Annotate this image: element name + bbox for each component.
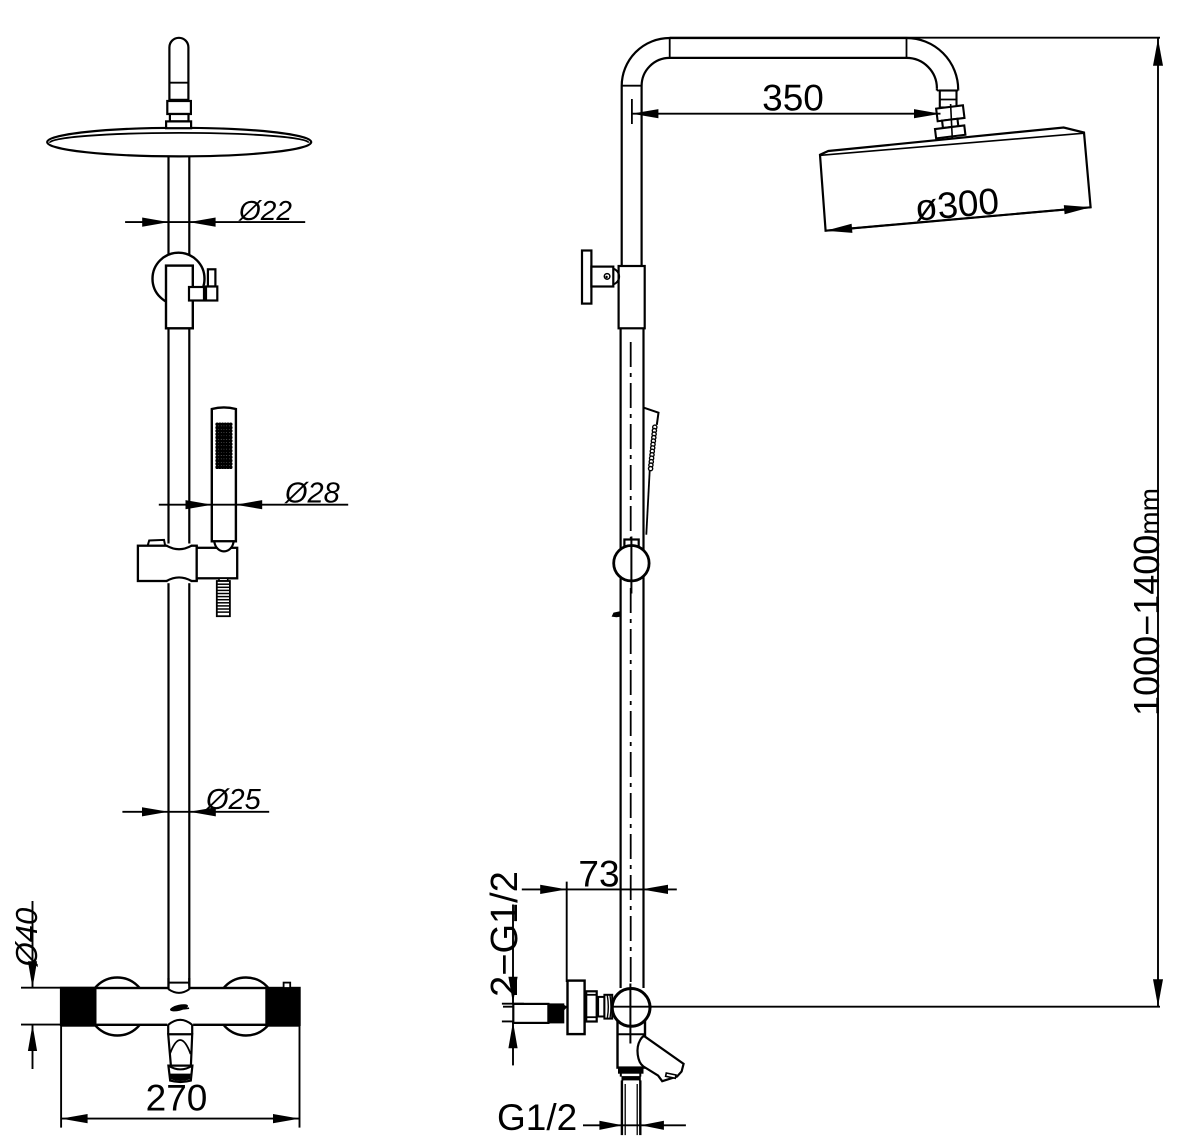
svg-text:G1/2: G1/2 <box>497 1097 577 1138</box>
svg-text:Ø25: Ø25 <box>205 784 262 816</box>
svg-text:270: 270 <box>146 1078 208 1119</box>
svg-text:ø300: ø300 <box>913 180 1001 228</box>
svg-text:73: 73 <box>578 854 619 895</box>
svg-text:350: 350 <box>762 78 824 119</box>
svg-text:Ø28: Ø28 <box>284 478 340 510</box>
svg-text:Ø22: Ø22 <box>238 195 292 226</box>
svg-text:Ø40: Ø40 <box>9 908 44 968</box>
svg-text:2−G1/2: 2−G1/2 <box>484 871 526 997</box>
